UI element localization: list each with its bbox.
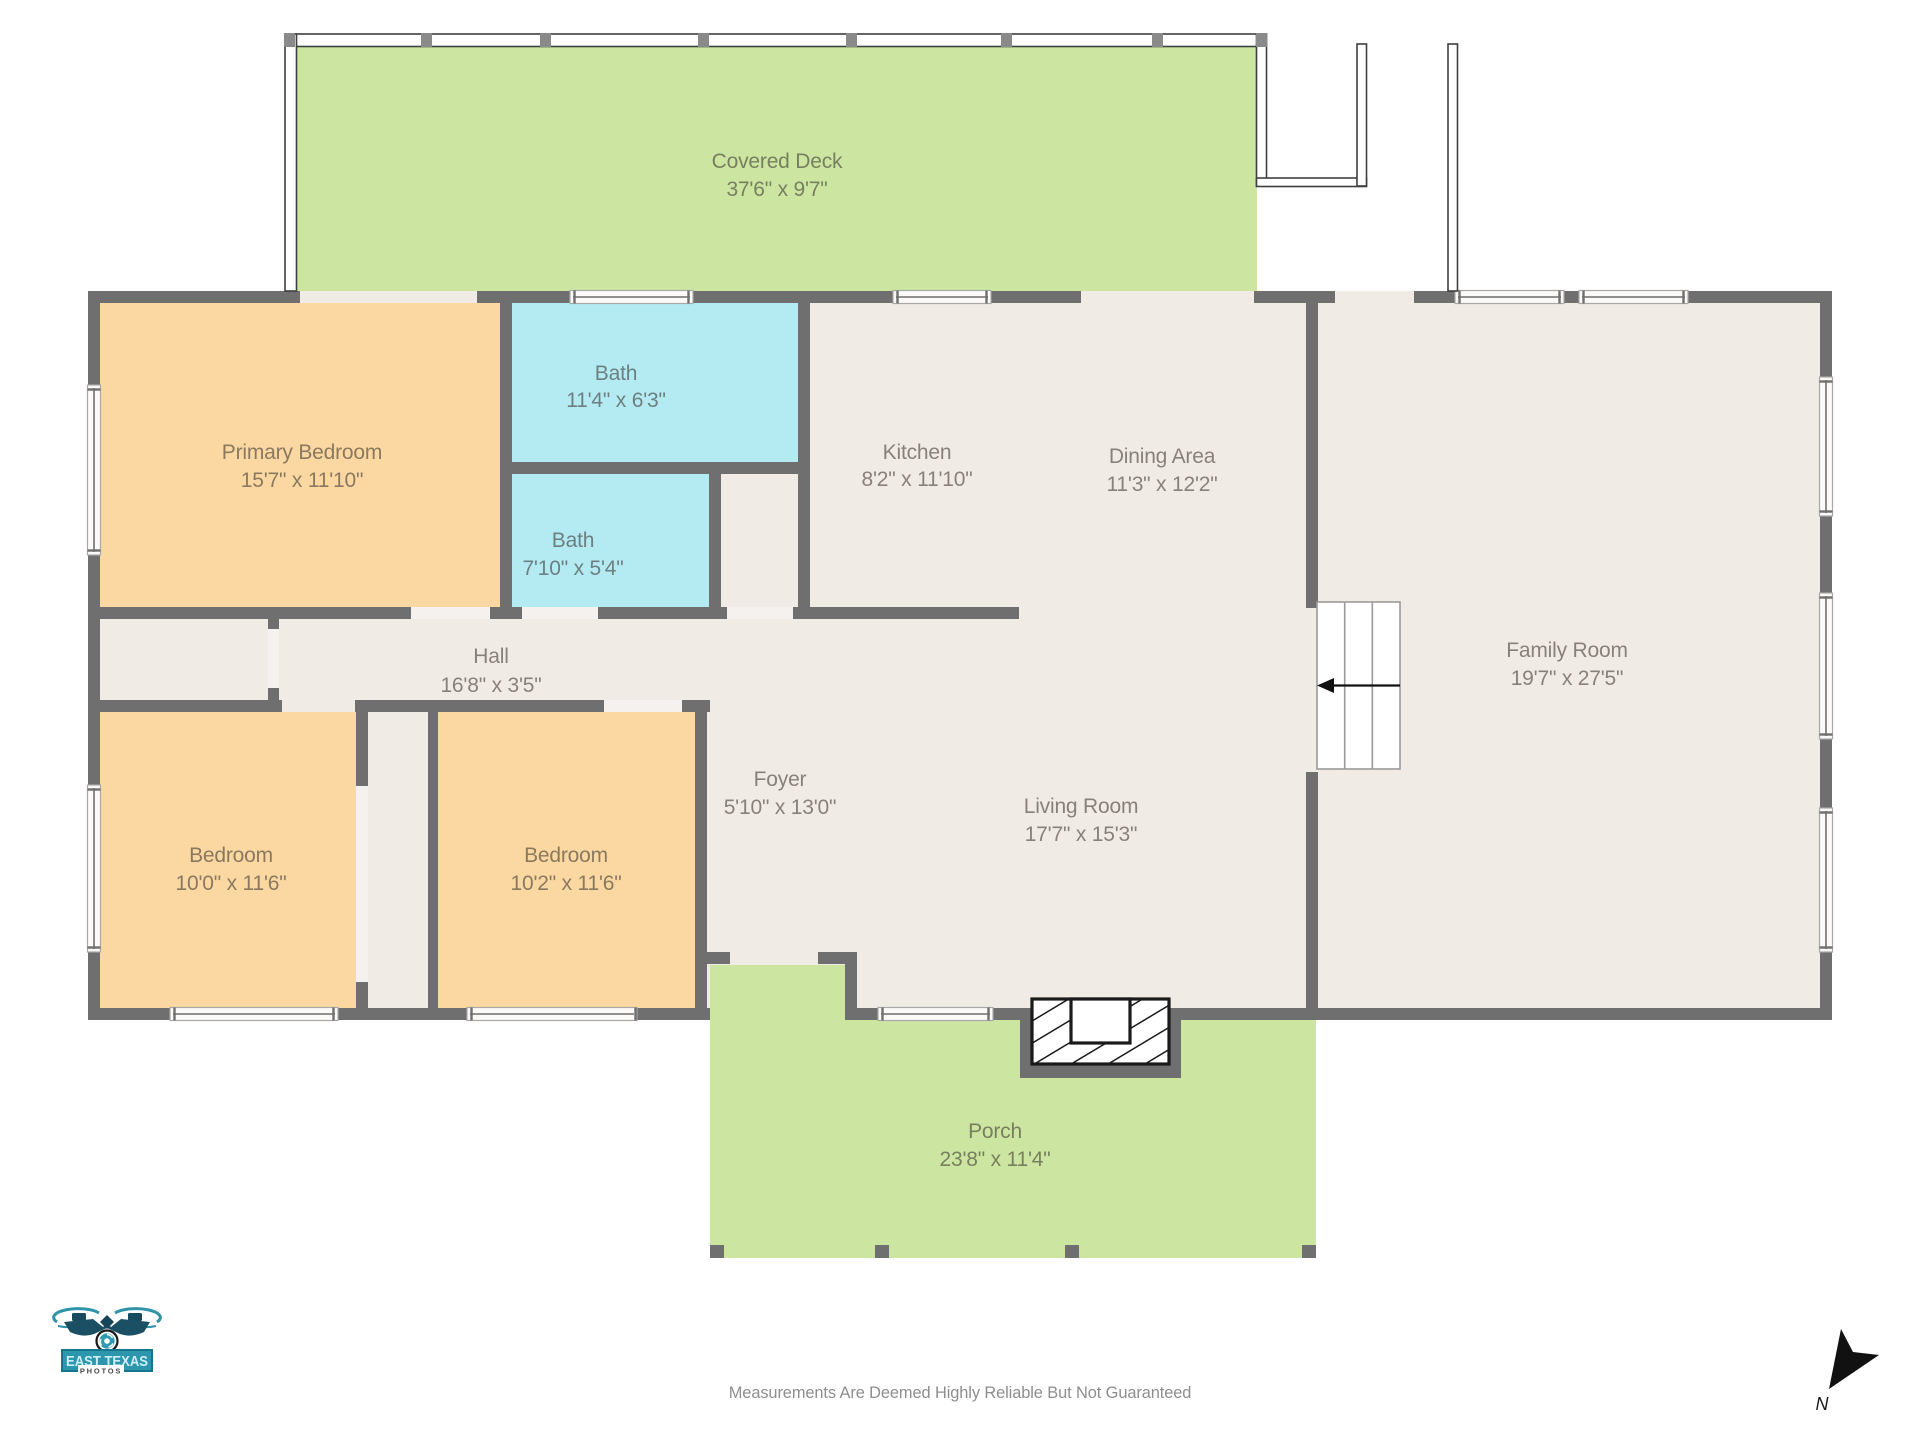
svg-text:15'7" x 11'10": 15'7" x 11'10" <box>241 469 364 492</box>
svg-text:23'8" x 11'4": 23'8" x 11'4" <box>939 1148 1050 1171</box>
svg-text:Kitchen: Kitchen <box>883 441 952 464</box>
svg-text:10'2" x 11'6": 10'2" x 11'6" <box>510 872 621 895</box>
svg-text:7'10" x 5'4": 7'10" x 5'4" <box>522 557 623 580</box>
svg-text:Bath: Bath <box>552 529 594 552</box>
svg-text:19'7" x 27'5": 19'7" x 27'5" <box>1511 667 1624 690</box>
svg-text:Dining Area: Dining Area <box>1109 445 1216 468</box>
svg-text:11'3" x 12'2": 11'3" x 12'2" <box>1106 473 1217 496</box>
svg-text:Family Room: Family Room <box>1506 639 1627 662</box>
svg-text:11'4" x 6'3": 11'4" x 6'3" <box>566 389 666 412</box>
svg-text:Living Room: Living Room <box>1024 795 1139 818</box>
svg-text:8'2" x 11'10": 8'2" x 11'10" <box>861 468 972 491</box>
svg-text:Covered Deck: Covered Deck <box>712 150 843 173</box>
svg-text:PHOTOS: PHOTOS <box>80 1367 122 1376</box>
svg-text:Primary Bedroom: Primary Bedroom <box>222 441 382 464</box>
svg-text:Measurements Are Deemed Highly: Measurements Are Deemed Highly Reliable … <box>729 1384 1192 1402</box>
svg-text:N: N <box>1816 1394 1830 1414</box>
svg-text:Bath: Bath <box>595 362 637 385</box>
svg-text:Foyer: Foyer <box>754 768 807 791</box>
svg-text:17'7" x 15'3": 17'7" x 15'3" <box>1025 823 1138 846</box>
svg-text:10'0" x 11'6": 10'0" x 11'6" <box>175 872 286 895</box>
svg-text:Hall: Hall <box>473 645 508 668</box>
svg-text:5'10" x 13'0": 5'10" x 13'0" <box>724 796 837 819</box>
svg-text:Bedroom: Bedroom <box>189 844 273 867</box>
svg-text:Porch: Porch <box>968 1120 1022 1143</box>
svg-text:37'6" x 9'7": 37'6" x 9'7" <box>726 178 827 201</box>
svg-text:Bedroom: Bedroom <box>524 844 608 867</box>
svg-text:16'8" x 3'5": 16'8" x 3'5" <box>440 674 541 697</box>
